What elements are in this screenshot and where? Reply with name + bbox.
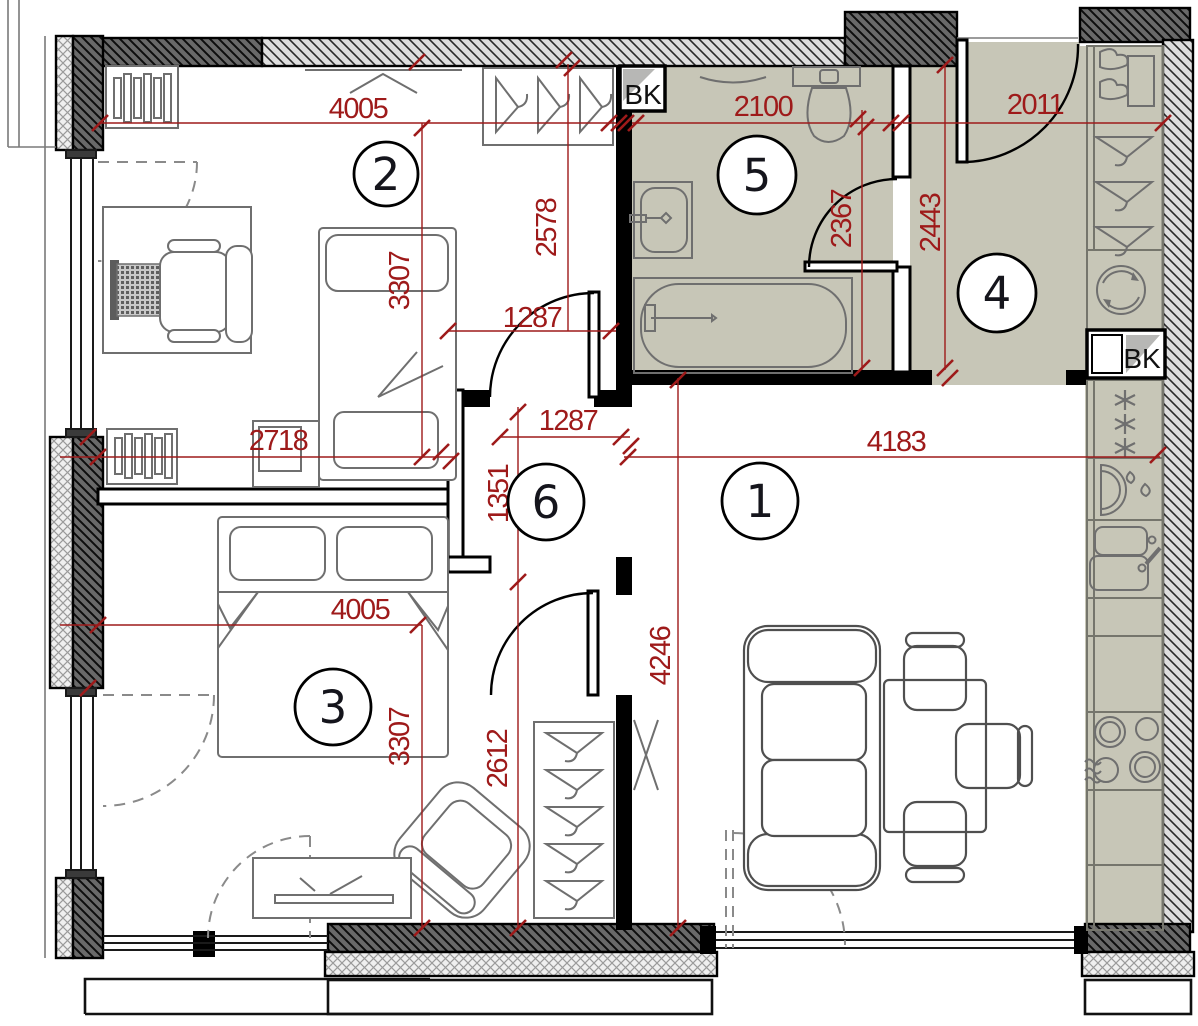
dim-room2-width: 4005 xyxy=(329,93,388,125)
wall-window-pier-b xyxy=(1074,926,1088,954)
wall-window-pier-a xyxy=(700,926,716,954)
balcony-left-outline xyxy=(85,979,430,1014)
dim-living-height: 4246 xyxy=(645,626,677,685)
room-label-2: 2 xyxy=(354,142,418,206)
floor-plan-page: BK BK xyxy=(0,0,1198,1026)
bk-box-kitchen: BK xyxy=(1087,330,1165,378)
wall-left-insulation-bottom xyxy=(56,878,73,958)
living-room-furniture xyxy=(744,626,1032,890)
wall-bottom-center-insulation xyxy=(325,952,717,976)
wall-left-insulation-mid xyxy=(50,437,73,688)
room3-furniture xyxy=(218,517,539,927)
entry-hall-floor xyxy=(910,42,1165,930)
svg-text:5: 5 xyxy=(743,149,772,202)
svg-text:3: 3 xyxy=(319,681,348,734)
window-bottom-living xyxy=(716,932,1074,948)
wall-left-insulation-top xyxy=(56,36,73,150)
room-label-4: 4 xyxy=(958,254,1036,332)
pillow xyxy=(230,527,325,580)
tv-icon xyxy=(275,895,393,903)
svg-text:2: 2 xyxy=(372,148,401,201)
room-label-3: 3 xyxy=(295,669,371,745)
wall-right xyxy=(1163,40,1193,932)
room2-furniture xyxy=(103,66,613,487)
dining-table xyxy=(884,680,986,832)
dim-hall-opening-a: 1287 xyxy=(503,302,562,334)
wall-passage-stub xyxy=(1066,370,1086,385)
sofa-armrest xyxy=(748,630,876,682)
wall-room2-east xyxy=(616,66,632,390)
wall-hall-east-upper xyxy=(616,557,632,595)
svg-text:4: 4 xyxy=(983,267,1012,320)
hall-wardrobe xyxy=(534,722,614,918)
wall-left-bottom xyxy=(73,878,103,958)
tv-cabinet xyxy=(253,858,411,918)
closet-hangers xyxy=(483,68,613,145)
wall-bathroom-east-lower xyxy=(893,267,910,372)
dim-room3-width: 4005 xyxy=(331,594,390,626)
wall-bottom-right-insulation xyxy=(1082,952,1194,976)
window-bottom-left xyxy=(103,936,328,950)
sofa-armrest xyxy=(748,834,876,886)
dim-room2-closet-depth: 2578 xyxy=(531,198,563,257)
wall-top-pier xyxy=(845,12,957,66)
dim-room2-bottom-width: 2718 xyxy=(249,425,308,457)
balconies xyxy=(85,979,1191,1014)
mirror-icon xyxy=(634,720,658,790)
dining-chair xyxy=(956,724,1032,788)
dining-chair xyxy=(904,633,966,710)
svg-text:6: 6 xyxy=(532,476,561,529)
dim-room3-height: 3307 xyxy=(384,707,416,766)
balcony-center-outline xyxy=(328,980,712,1014)
pillow xyxy=(337,527,432,580)
dim-bathroom-width: 2100 xyxy=(734,91,793,123)
curtain-icon xyxy=(305,70,462,93)
floor-plan-canvas: BK BK xyxy=(0,0,1198,1026)
wall-top-light xyxy=(262,38,845,66)
bk-label-bathroom: BK xyxy=(624,79,662,110)
wall-left-top xyxy=(73,36,103,150)
wall-room2-room3-divider xyxy=(98,489,450,504)
wall-bottom-center xyxy=(328,924,714,952)
dim-entry-hall-width: 2011 xyxy=(1007,89,1064,121)
room-label-6: 6 xyxy=(508,464,584,540)
window-left-upper xyxy=(66,150,96,437)
room3-window-swing-arc xyxy=(103,695,214,806)
bk-label-kitchen: BK xyxy=(1123,343,1161,374)
wall-bottom-right xyxy=(1085,924,1190,952)
dim-bathroom-height: 2367 xyxy=(826,189,858,248)
dining-chair xyxy=(904,802,966,882)
office-chair-icon xyxy=(160,240,252,342)
dim-hall-opening-b: 1287 xyxy=(539,405,598,437)
bk-box-bathroom: BK xyxy=(620,66,665,111)
wall-hall-east-lower xyxy=(616,695,632,930)
room-label-1: 1 xyxy=(722,463,798,539)
dim-entry-hall-height: 2443 xyxy=(915,193,947,252)
radiator-icon xyxy=(106,66,178,128)
hall-furniture xyxy=(534,720,658,918)
wall-hall-west-jog xyxy=(448,557,490,572)
sofa-cushion xyxy=(762,684,866,760)
door-living xyxy=(491,591,598,695)
sofa xyxy=(744,626,880,890)
sofa-cushion xyxy=(762,760,866,836)
svg-text:1: 1 xyxy=(746,475,775,528)
room-label-5: 5 xyxy=(718,136,796,214)
wall-left-mid xyxy=(73,437,103,688)
dim-hall-lower-length: 2612 xyxy=(482,729,514,788)
dim-living-width: 4183 xyxy=(867,426,926,458)
balcony-right-outline xyxy=(1085,980,1191,1014)
wall-topright-block xyxy=(1080,8,1190,42)
window-left-lower xyxy=(66,688,96,878)
dim-room2-height: 3307 xyxy=(384,251,416,310)
